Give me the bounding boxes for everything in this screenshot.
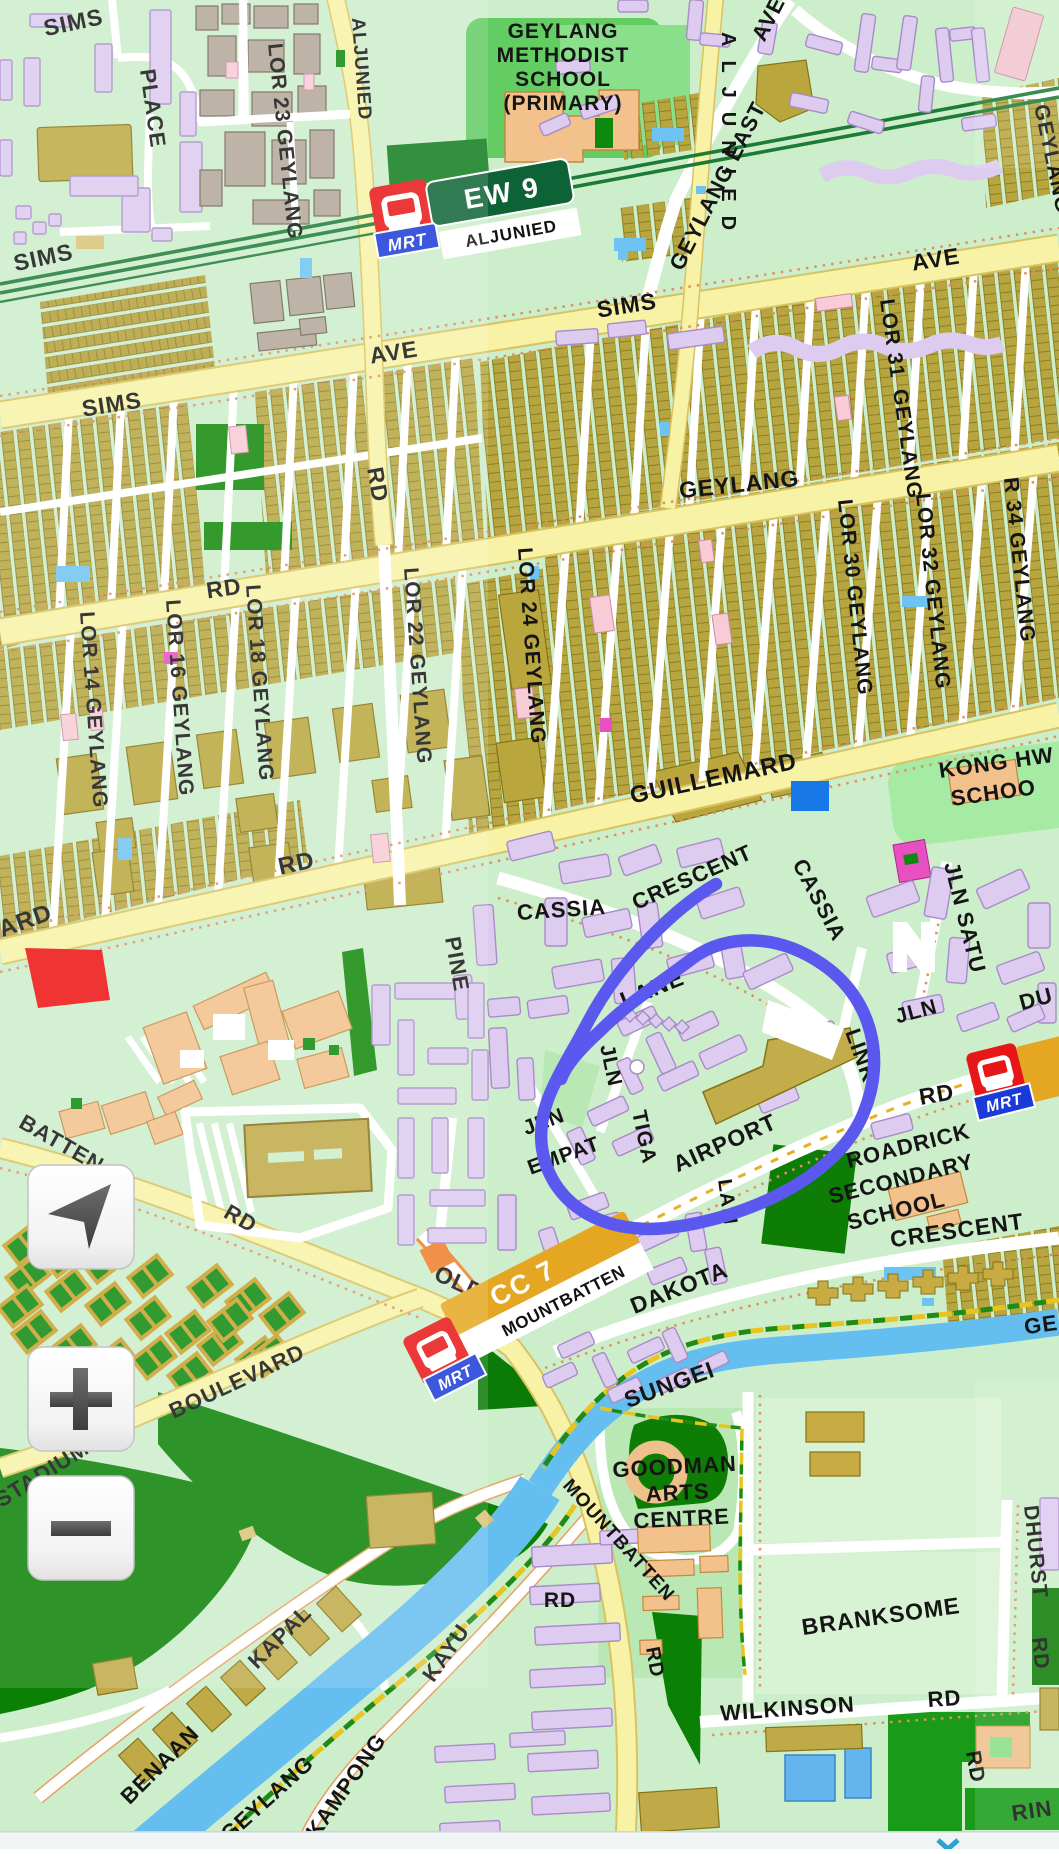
svg-text:METHODIST: METHODIST — [497, 44, 630, 67]
svg-text:SCHOOL: SCHOOL — [515, 68, 611, 91]
svg-text:CENTRE: CENTRE — [633, 1504, 731, 1534]
svg-text:ARTS: ARTS — [645, 1478, 710, 1506]
svg-text:RD: RD — [544, 1589, 576, 1612]
svg-text:RD: RD — [927, 1685, 962, 1712]
svg-text:GE: GE — [1022, 1310, 1059, 1339]
svg-text:(PRIMARY): (PRIMARY) — [503, 92, 622, 115]
svg-text:GEYLANG: GEYLANG — [508, 20, 619, 43]
